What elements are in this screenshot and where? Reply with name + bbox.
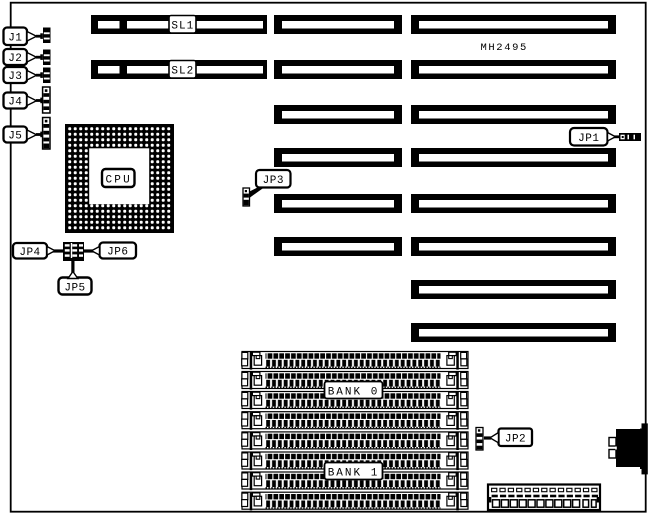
- svg-text:JP2: JP2: [505, 433, 526, 445]
- svg-text:J2: J2: [8, 53, 22, 65]
- svg-text:J3: J3: [8, 71, 22, 83]
- svg-text:JP4: JP4: [19, 247, 40, 259]
- svg-text:JP6: JP6: [107, 247, 128, 259]
- svg-text:JP1: JP1: [578, 133, 599, 145]
- svg-text:BANK 0: BANK 0: [328, 387, 380, 399]
- svg-text:J1: J1: [8, 33, 22, 45]
- svg-text:CPU: CPU: [105, 175, 131, 187]
- svg-text:MH2495: MH2495: [481, 42, 528, 54]
- svg-text:SL2: SL2: [171, 66, 194, 78]
- svg-text:J5: J5: [8, 131, 22, 143]
- svg-text:JP5: JP5: [64, 283, 85, 295]
- svg-text:SL1: SL1: [171, 21, 194, 33]
- svg-text:J4: J4: [8, 97, 22, 109]
- svg-text:JP3: JP3: [263, 175, 284, 187]
- svg-text:BANK 1: BANK 1: [328, 468, 380, 480]
